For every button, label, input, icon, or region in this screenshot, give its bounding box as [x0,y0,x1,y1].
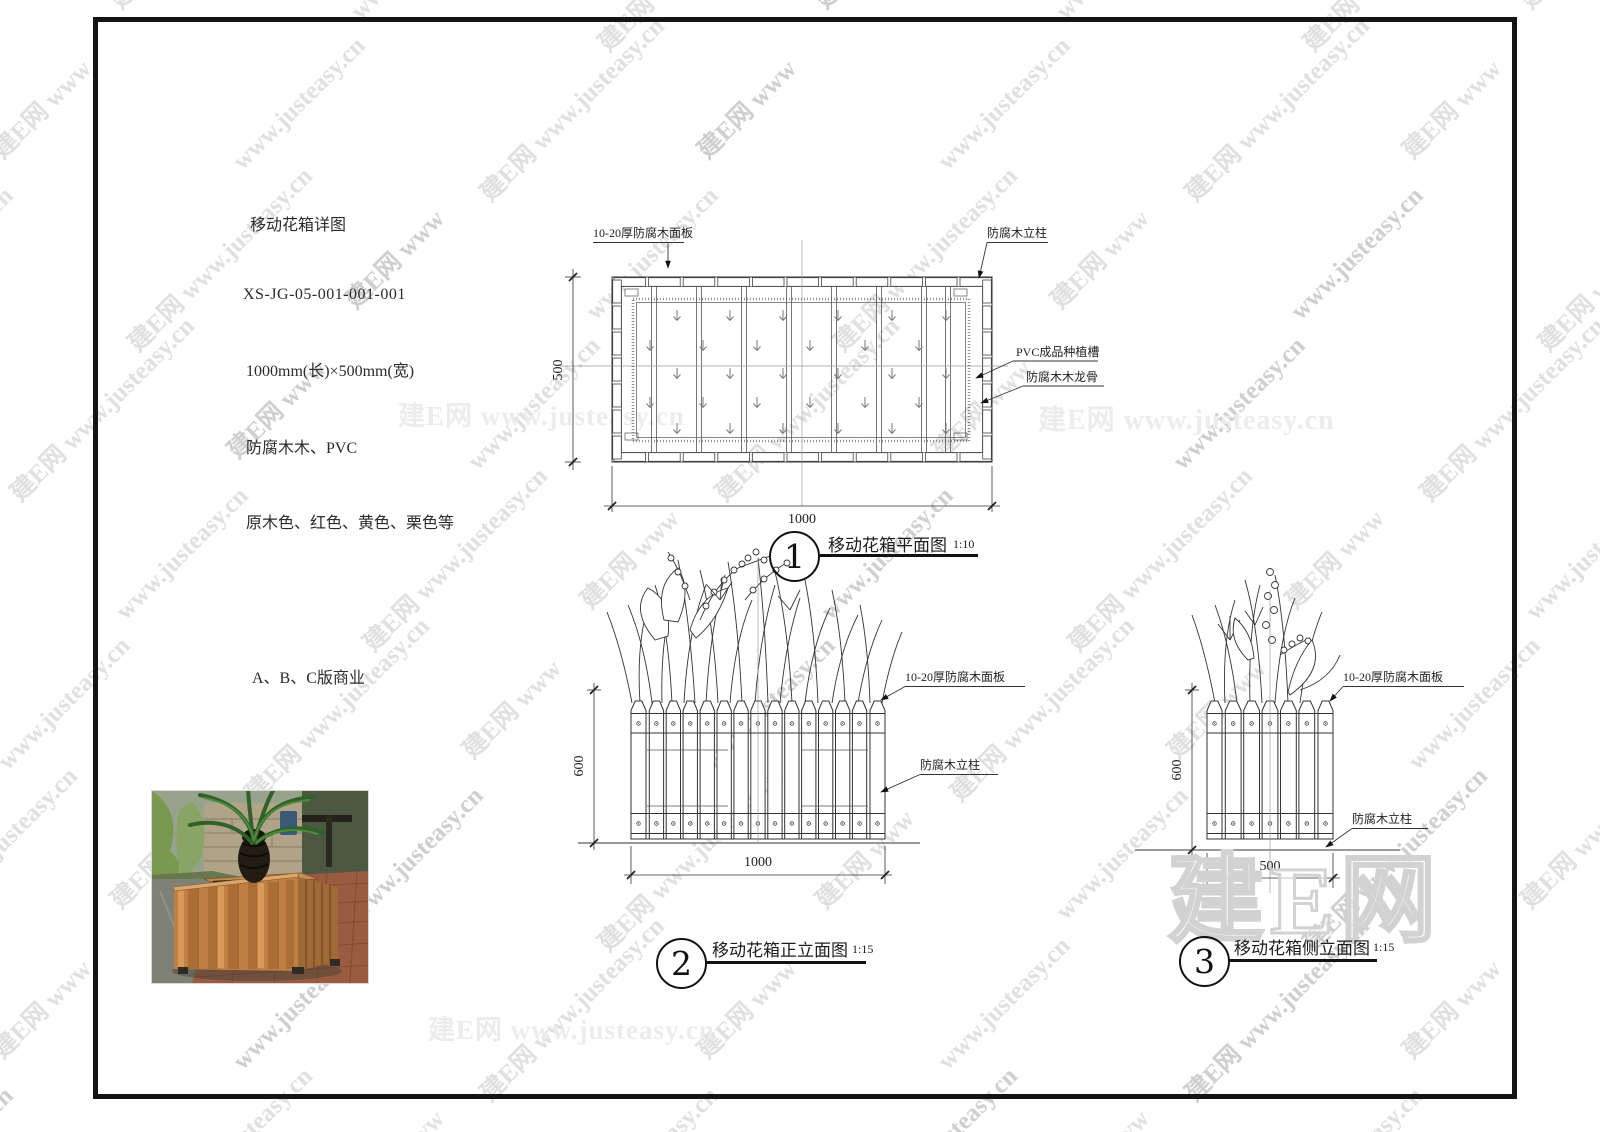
plants-front [607,549,902,703]
label-post: 防腐木立柱 [979,225,1048,278]
detail-number: 3 [1194,945,1215,978]
detail-number-circle: 2 [656,938,707,989]
reference-photo [151,790,369,984]
joist-lines [652,287,951,452]
watermark-tile: 建E网 www.justeasy.cn [1529,1058,1600,1132]
watermark-tile: 建E网 www [0,50,98,165]
svg-text:防腐木立柱: 防腐木立柱 [920,757,980,772]
drawing-number: XS-JG-05-001-001-001 [243,286,406,304]
title-underline [706,961,866,964]
svg-text:防腐木立柱: 防腐木立柱 [1352,811,1412,826]
svg-text:防腐木木龙骨: 防腐木木龙骨 [1026,369,1098,384]
watermark-tile: www.justeasy.cn [0,182,19,326]
dim-text-500: 500 [1260,859,1281,874]
front-elevation-drawing: 600 1000 10-20厚防腐木面板 防腐木立柱 [540,545,1060,895]
spec-material: 防腐木木、PVC [246,434,357,458]
watermark-tile: 建E网 www [806,0,921,16]
view-title-text: 移动花箱正立面图 [712,936,848,961]
title-underline [1229,959,1377,962]
svg-text:10-20厚防腐木面板: 10-20厚防腐木面板 [593,225,693,240]
view-title-text: 移动花箱侧立面图 [1234,934,1370,959]
dim-text-600: 600 [572,756,587,777]
detail-number: 1 [784,540,805,573]
spec-size: 1000mm(长)×500mm(宽) [246,357,414,381]
watermark-tile: 建E网 www [1041,1100,1156,1132]
detail-number-circle: 3 [1179,936,1230,987]
view-scale: 1:15 [852,942,873,957]
label-panel: 10-20厚防腐木面板 [593,225,693,268]
soil-hatch-arrows [647,310,950,434]
label-post: 防腐木立柱 [1326,811,1428,847]
watermark-tile: 建E网 www [336,1100,451,1132]
drawing-sheet: 建E网 www.justeasy.cn建E网 wwwwww.justeasy.c… [0,0,1600,1132]
dim-text-600: 600 [1170,760,1185,781]
dim-text-500: 500 [551,360,566,381]
label-joist: 防腐木木龙骨 [981,369,1104,403]
svg-text:10-20厚防腐木面板: 10-20厚防腐木面板 [1343,669,1443,684]
dim-text-1000: 1000 [788,512,816,527]
dim-height: 600 [1170,683,1199,857]
photo-tree [302,791,368,879]
dim-text-1000: 1000 [744,855,772,870]
label-panel: 10-20厚防腐木面板 [1330,669,1464,701]
side-elevation-drawing: 600 500 10-20厚防腐木面板 防腐木立柱 [1120,545,1550,905]
dim-length: 1000 [624,846,892,884]
spec-usage: A、B、C版商业 [252,664,365,688]
watermark-tile: 建E网 www.justeasy.cn [0,758,84,959]
plants-side [1192,569,1340,704]
sheet-title: 移动花箱详图 [250,211,346,235]
pvc-planter-outline [633,299,969,441]
dim-height: 600 [572,683,601,850]
view-scale: 1:10 [953,537,974,552]
watermark-tile: www.justeasy.cn [0,1082,19,1132]
plan-view-drawing: 500 1000 10-20厚防腐木面板 防腐木立柱 PVC成品种植槽 [540,195,1120,540]
detail-number-circle: 1 [769,531,820,582]
svg-text:PVC成品种植槽: PVC成品种植槽 [1016,344,1099,359]
watermark-tile: 建E网 www [101,0,216,16]
svg-text:防腐木立柱: 防腐木立柱 [987,225,1047,240]
watermark-tile: 建E网 www.justeasy.cn [0,0,84,58]
label-panel: 10-20厚防腐木面板 [881,669,1025,700]
watermark-tile: 建E网 www [1511,0,1600,16]
view-title-text: 移动花箱平面图 [828,531,947,556]
detail-number: 2 [671,947,692,980]
spec-colors: 原木色、红色、黄色、栗色等 [246,509,454,533]
label-post: 防腐木立柱 [881,757,998,792]
view-scale: 1:15 [1373,940,1394,955]
watermark-tile: 建E网 www.justeasy.cn [1529,158,1600,359]
photo-planter-box [174,873,340,974]
svg-text:10-20厚防腐木面板: 10-20厚防腐木面板 [905,669,1005,684]
dim-width: 500 [551,269,581,470]
watermark-tile: 建E网 www [0,950,98,1065]
